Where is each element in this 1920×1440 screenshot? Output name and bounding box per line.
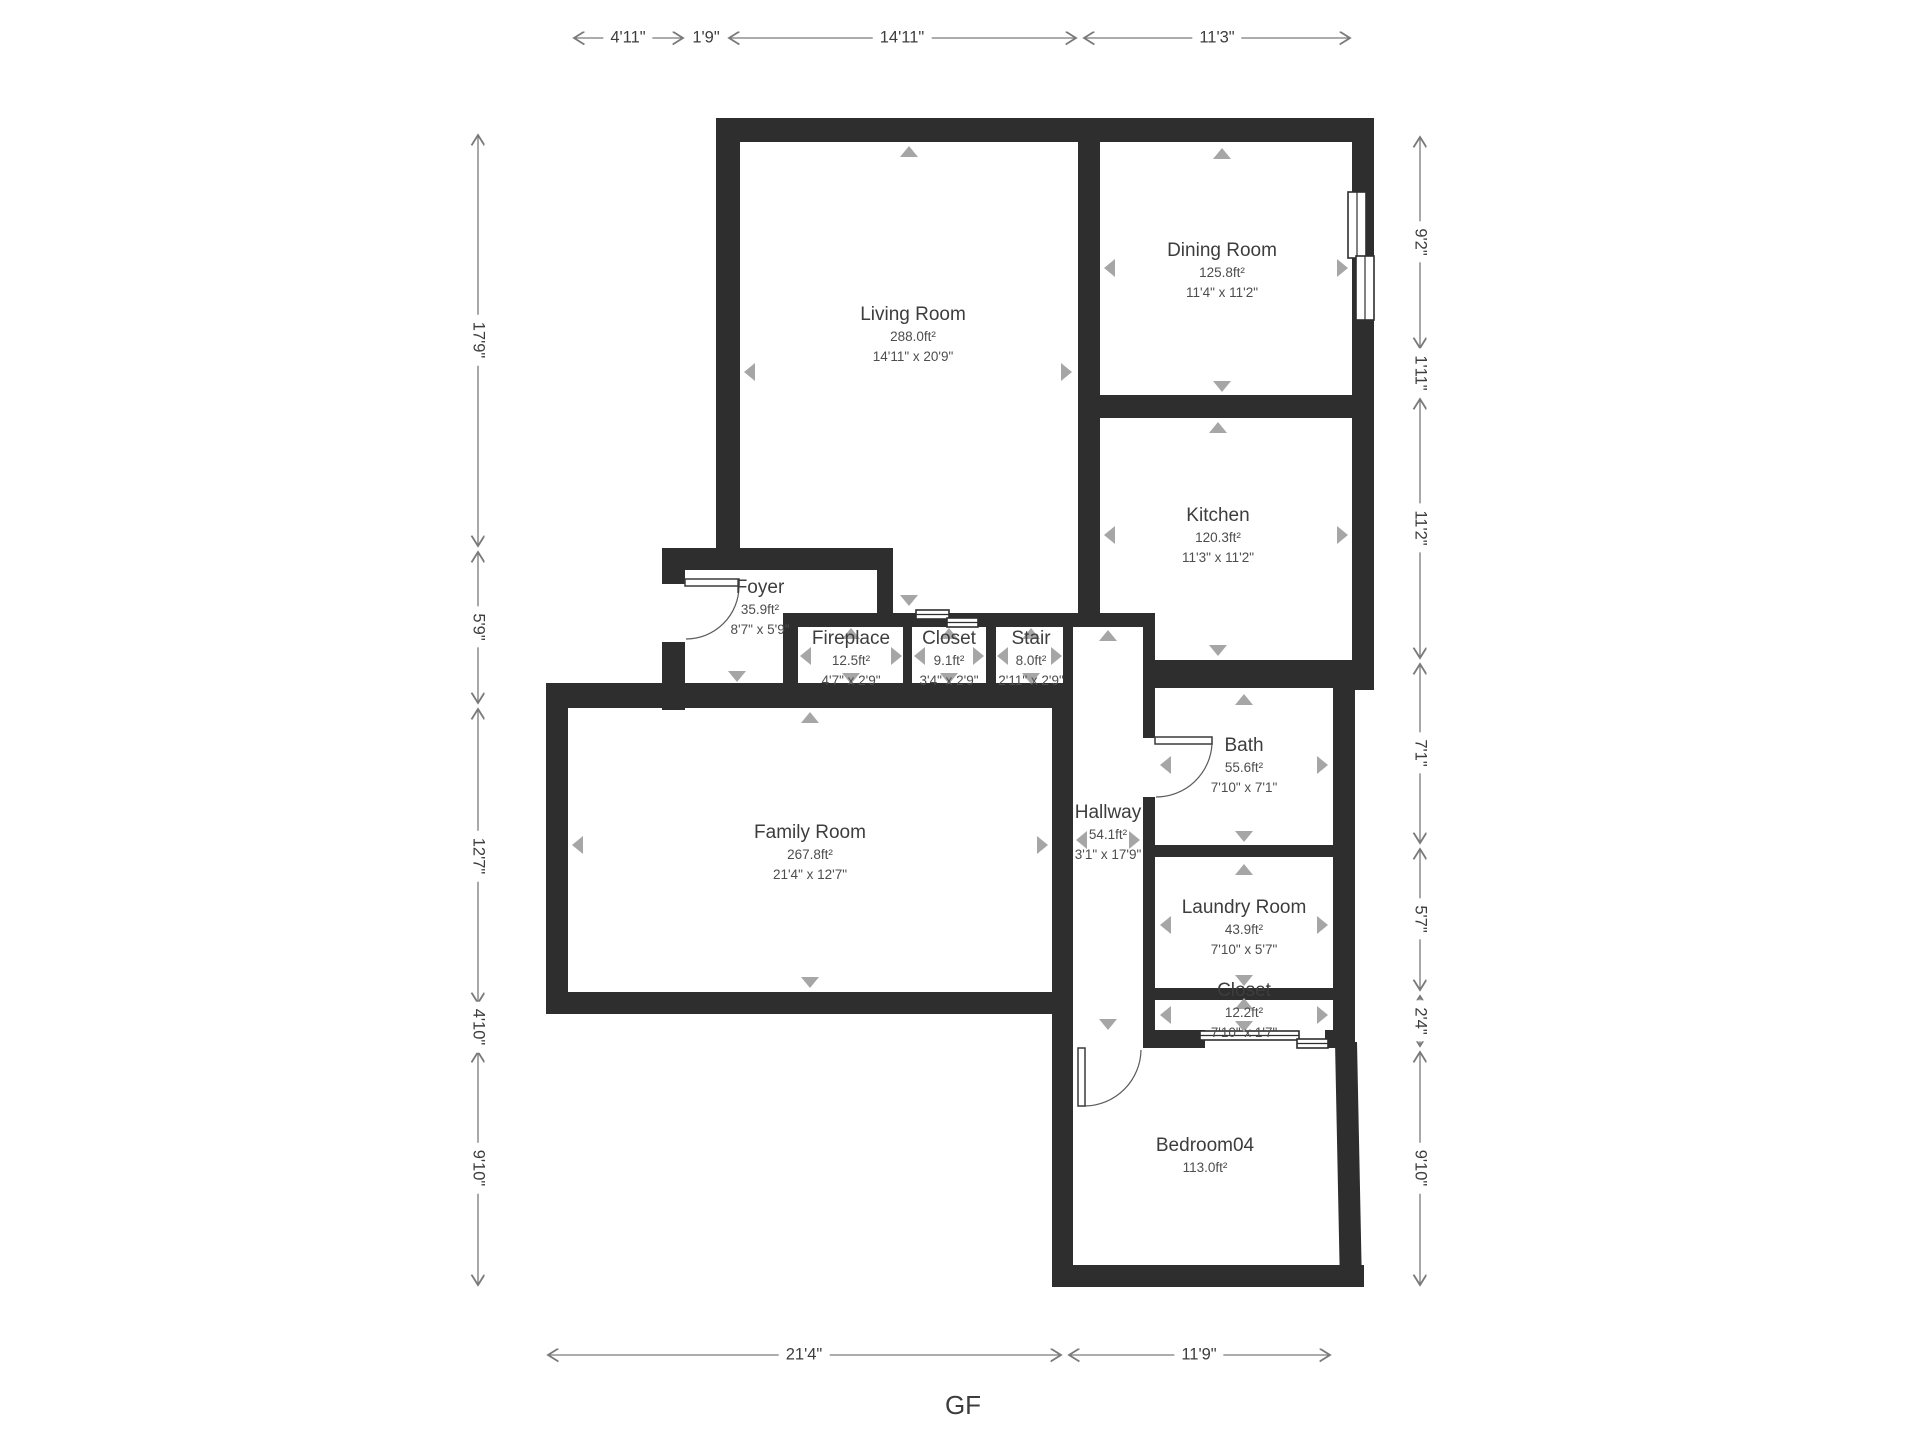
room-area: 43.9ft² xyxy=(1182,920,1307,940)
room-area: 54.1ft² xyxy=(1075,825,1142,845)
arrow-left-icon xyxy=(1104,526,1115,544)
arrow-down-icon xyxy=(1235,831,1253,842)
room-label-dining-room: Dining Room 125.8ft² 11'4" x 11'2" xyxy=(1167,238,1277,303)
room-dims: 11'3" x 11'2" xyxy=(1182,548,1254,568)
room-name: Fireplace xyxy=(812,626,890,651)
arrow-left-icon xyxy=(1160,1006,1171,1024)
arrow-left-icon xyxy=(572,836,583,854)
arrow-right-icon xyxy=(1317,1006,1328,1024)
dimension-label-top: 4'11" xyxy=(603,28,652,49)
arrow-up-icon xyxy=(1235,694,1253,705)
arrow-up-icon xyxy=(900,146,918,157)
arrow-up-icon xyxy=(1213,148,1231,159)
dimension-label-right: 5'7" xyxy=(1410,898,1431,939)
room-name: Family Room xyxy=(754,820,866,845)
floor-plan-drawing xyxy=(0,0,1920,1440)
room-dims: 3'4" x 2'9" xyxy=(919,671,978,691)
room-label-foyer: Foyer 35.9ft² 8'7" x 5'9" xyxy=(730,575,789,640)
arrow-down-icon xyxy=(900,595,918,606)
room-label-closet: Closet 9.1ft² 3'4" x 2'9" xyxy=(919,626,978,691)
dimension-label-top: 14'11" xyxy=(873,28,932,49)
room-area: 9.1ft² xyxy=(919,651,978,671)
room-label-bath: Bath 55.6ft² 7'10" x 7'1" xyxy=(1211,733,1278,798)
room-area: 125.8ft² xyxy=(1167,263,1277,283)
arrow-down-icon xyxy=(728,671,746,682)
room-name: Foyer xyxy=(730,575,789,600)
room-dims: 11'4" x 11'2" xyxy=(1167,283,1277,303)
dimension-label-left: 17'9" xyxy=(468,315,489,366)
arrow-up-icon xyxy=(1235,864,1253,875)
room-area: 120.3ft² xyxy=(1182,528,1254,548)
room-label-stair: Stair 8.0ft² 2'11" x 2'9" xyxy=(998,626,1064,691)
room-name: Stair xyxy=(998,626,1064,651)
room-dims: 2'11" x 2'9" xyxy=(998,671,1064,691)
room-dims: 14'11" x 20'9" xyxy=(860,347,966,367)
room-dims: 7'10" x 7'1" xyxy=(1211,778,1278,798)
room-area: 113.0ft² xyxy=(1156,1158,1254,1178)
room-label-laundry-room: Laundry Room 43.9ft² 7'10" x 5'7" xyxy=(1182,895,1307,960)
room-dims: 7'10" x 1'7" xyxy=(1211,1023,1278,1043)
room-dims: 4'7" x 2'9" xyxy=(812,671,890,691)
arrow-right-icon xyxy=(1317,916,1328,934)
room-dims: 7'10" x 5'7" xyxy=(1182,940,1307,960)
room-name: Closet xyxy=(1211,978,1278,1003)
dimension-label-left: 5'9" xyxy=(468,606,489,647)
dimension-label-bottom: 21'4" xyxy=(779,1345,830,1366)
arrow-left-icon xyxy=(1160,916,1171,934)
dimension-label-right: 7'1" xyxy=(1410,732,1431,773)
arrow-right-icon xyxy=(1337,259,1348,277)
room-area: 55.6ft² xyxy=(1211,758,1278,778)
arrow-left-icon xyxy=(1104,259,1115,277)
room-dims: 8'7" x 5'9" xyxy=(730,620,789,640)
arrow-left-icon xyxy=(800,647,811,665)
arrow-right-icon xyxy=(891,647,902,665)
arrow-right-icon xyxy=(1061,363,1072,381)
room-label-living-room: Living Room 288.0ft² 14'11" x 20'9" xyxy=(860,302,966,367)
dimension-label-right: 1'11" xyxy=(1410,348,1431,397)
dimension-label-left: 9'10" xyxy=(468,1143,489,1194)
arrow-down-icon xyxy=(1213,381,1231,392)
room-label-closet-2: Closet 12.2ft² 7'10" x 1'7" xyxy=(1211,978,1278,1043)
dimension-label-left: 12'7" xyxy=(468,831,489,882)
room-area: 8.0ft² xyxy=(998,651,1064,671)
room-area: 12.2ft² xyxy=(1211,1003,1278,1023)
room-name: Laundry Room xyxy=(1182,895,1307,920)
dimension-label-bottom: 11'9" xyxy=(1174,1345,1223,1366)
room-name: Hallway xyxy=(1075,800,1142,825)
arrow-right-icon xyxy=(1337,526,1348,544)
room-name: Bath xyxy=(1211,733,1278,758)
room-name: Bedroom04 xyxy=(1156,1133,1254,1158)
dimension-label-top: 1'9" xyxy=(685,28,726,49)
arrow-left-icon xyxy=(1160,756,1171,774)
arrow-down-icon xyxy=(1209,645,1227,656)
arrow-down-icon xyxy=(1099,1019,1117,1030)
dimension-label-right: 9'10" xyxy=(1410,1143,1431,1194)
bedroom-door xyxy=(1078,1048,1141,1106)
room-name: Kitchen xyxy=(1182,503,1254,528)
arrow-left-icon xyxy=(744,363,755,381)
dimension-label-left: 4'10" xyxy=(468,1002,489,1053)
room-dims: 21'4" x 12'7" xyxy=(754,865,866,885)
dimension-label-right: 9'2" xyxy=(1410,221,1431,262)
room-name: Living Room xyxy=(860,302,966,327)
room-label-hallway: Hallway 54.1ft² 3'1" x 17'9" xyxy=(1075,800,1142,865)
arrow-up-icon xyxy=(1209,422,1227,433)
floor-plan: Living Room 288.0ft² 14'11" x 20'9" Dini… xyxy=(0,0,1920,1440)
room-name: Dining Room xyxy=(1167,238,1277,263)
room-area: 35.9ft² xyxy=(730,600,789,620)
floor-title: GF xyxy=(945,1390,981,1421)
arrow-right-icon xyxy=(1037,836,1048,854)
dimension-label-right: 11'2" xyxy=(1410,503,1431,552)
room-dims: 3'1" x 17'9" xyxy=(1075,845,1142,865)
arrow-down-icon xyxy=(801,977,819,988)
dimension-label-top: 11'3" xyxy=(1192,28,1241,49)
room-label-fireplace: Fireplace 12.5ft² 4'7" x 2'9" xyxy=(812,626,890,691)
room-name: Closet xyxy=(919,626,978,651)
room-area: 267.8ft² xyxy=(754,845,866,865)
room-area: 12.5ft² xyxy=(812,651,890,671)
arrow-right-icon xyxy=(1317,756,1328,774)
room-label-family-room: Family Room 267.8ft² 21'4" x 12'7" xyxy=(754,820,866,885)
arrow-up-icon xyxy=(801,712,819,723)
arrow-up-icon xyxy=(1099,630,1117,641)
room-label-kitchen: Kitchen 120.3ft² 11'3" x 11'2" xyxy=(1182,503,1254,568)
dimension-label-right: 2'4" xyxy=(1410,1000,1431,1041)
room-label-bedroom04: Bedroom04 113.0ft² xyxy=(1156,1133,1254,1178)
room-area: 288.0ft² xyxy=(860,327,966,347)
